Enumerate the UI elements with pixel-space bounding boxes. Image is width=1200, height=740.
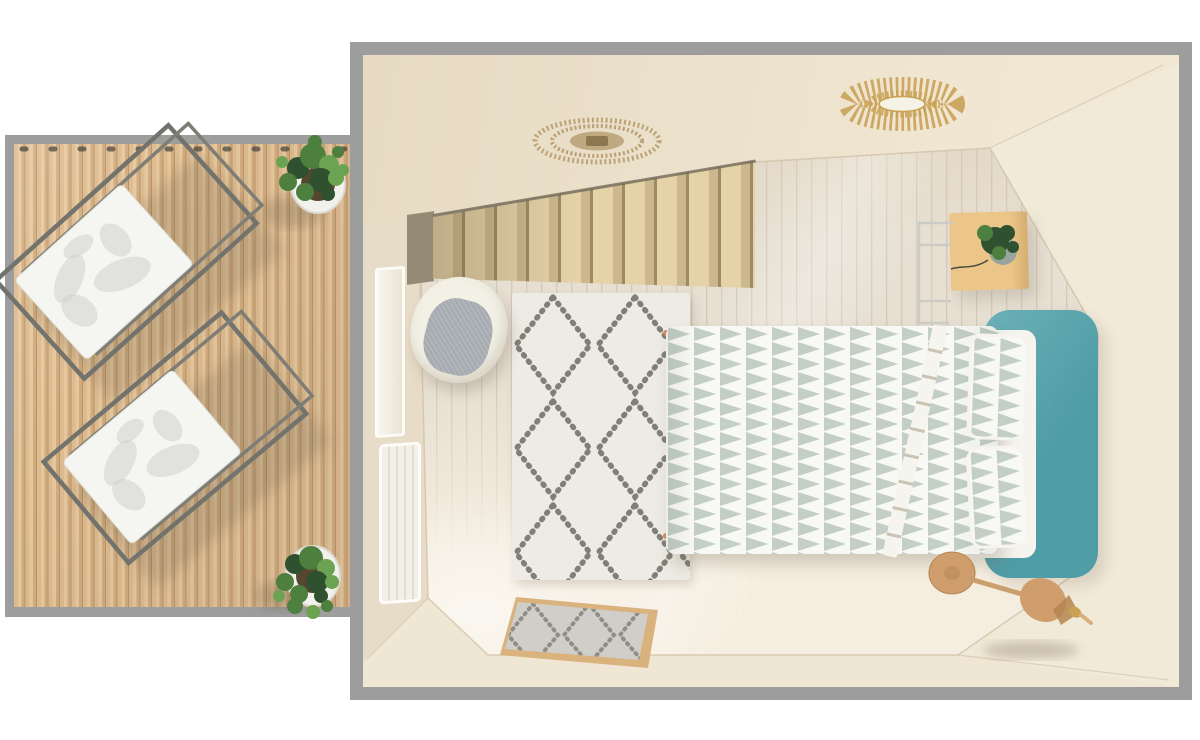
bedroom-interior <box>363 55 1179 687</box>
duvet-shading <box>666 326 998 554</box>
deck-decor <box>14 144 352 607</box>
pillow-1 <box>966 333 1030 441</box>
deck-terrace <box>5 135 352 617</box>
pillow-2 <box>965 444 1030 549</box>
floorplan-render <box>0 0 1200 740</box>
potted-plant-top <box>260 135 349 228</box>
side-table <box>949 211 1029 291</box>
duvet <box>666 326 998 554</box>
potted-plant-bottom <box>255 546 340 619</box>
bedroom <box>350 42 1192 700</box>
